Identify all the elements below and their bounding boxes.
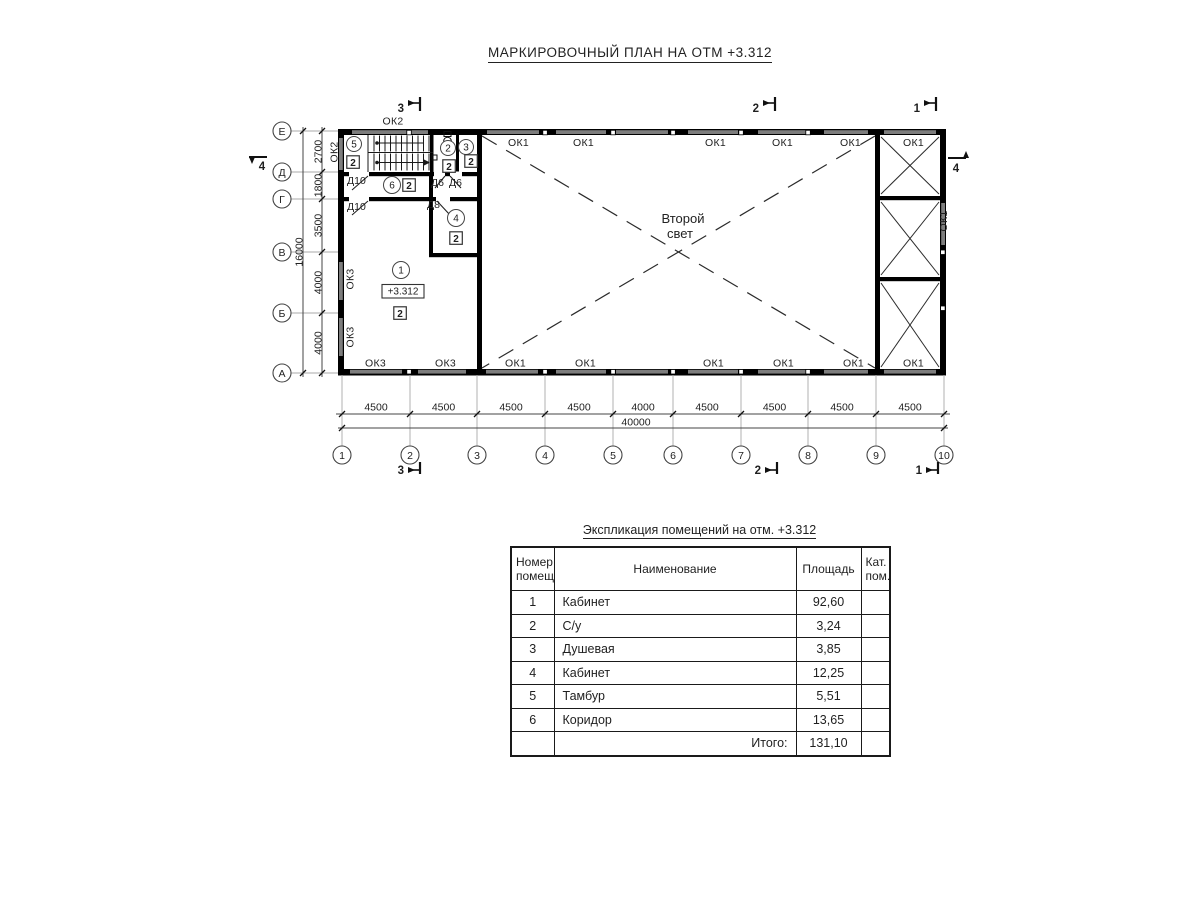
- total-area: 131,10: [796, 732, 861, 756]
- window-label-ok1: ОК1: [573, 137, 594, 149]
- axis-letter: Д: [278, 167, 285, 179]
- window-label-ok1: ОК1: [508, 137, 529, 149]
- room-number: 4: [453, 214, 459, 225]
- window-label-ok1: ОК1: [772, 137, 793, 149]
- section-mark-4-right: 4: [948, 151, 969, 175]
- axis-letter: Б: [279, 308, 286, 320]
- axis-number: 5: [610, 450, 616, 462]
- cell-name: Душевая: [554, 638, 796, 662]
- section-mark-1-top: 1: [914, 97, 936, 115]
- section-mark-3-top: 3: [398, 97, 420, 115]
- second-light-cross: [482, 136, 875, 368]
- window-label-ok2: ОК2: [382, 116, 403, 128]
- section-mark-1-bottom: 1: [916, 462, 938, 477]
- elevation-value: +3.312: [388, 287, 419, 298]
- cell-room-number: 4: [511, 661, 554, 685]
- dim-label: 4500: [695, 402, 719, 414]
- table-row: 2 С/у 3,24: [511, 614, 890, 638]
- wall-pier-squares: [407, 130, 945, 374]
- axis-letter: В: [278, 247, 285, 259]
- dim-total-label: 40000: [621, 417, 650, 429]
- axis-number: 1: [339, 450, 345, 462]
- stairs: [368, 135, 433, 172]
- cell-area: 12,25: [796, 661, 861, 685]
- dim-label: 4500: [830, 402, 854, 414]
- section-mark-2-bottom: 2: [755, 462, 777, 477]
- header-name: Наименование: [554, 547, 796, 591]
- cell-area: 5,51: [796, 685, 861, 709]
- cell-category: [861, 685, 890, 709]
- window-labels: ОК2 ОК1 ОК1 ОК1 ОК1 ОК1 ОК1 ОК3 ОК3 ОК1 …: [329, 116, 951, 370]
- cell-name: Кабинет: [554, 591, 796, 615]
- door-label-d6: Д6: [449, 177, 462, 189]
- explication-title-text: Экспликация помещений на отм. +3.312: [583, 523, 817, 539]
- section-mark-2-top: 2: [753, 97, 775, 115]
- cell-category: [861, 708, 890, 732]
- window-label-ok3: ОК3: [345, 268, 357, 289]
- section-mark-4-left: 4: [249, 157, 267, 173]
- table-row: 4 Кабинет 12,25: [511, 661, 890, 685]
- category-mark: 2: [468, 157, 474, 168]
- cell-name: Коридор: [554, 708, 796, 732]
- axis-number: 4: [542, 450, 548, 462]
- table-header-row: Номер помещ. Наименование Площадь Кат. п…: [511, 547, 890, 591]
- floor-plan: 4500 4500 4500 4500 4000 4500 4500 4500 …: [240, 85, 980, 495]
- door-label-d8: Д8: [427, 199, 440, 211]
- room-number: 6: [389, 181, 395, 192]
- room-number: 2: [445, 144, 451, 155]
- cell-area: 3,85: [796, 638, 861, 662]
- explication: Экспликация помещений на отм. +3.312 Ном…: [510, 521, 889, 757]
- section-number: 4: [259, 161, 266, 173]
- wall-axis3: [477, 135, 482, 369]
- window-label-ok1: ОК1: [705, 137, 726, 149]
- table-row: 3 Душевая 3,85: [511, 638, 890, 662]
- wall-rightsection-div1: [876, 196, 940, 200]
- table-row: 6 Коридор 13,65: [511, 708, 890, 732]
- window-label-ok1: ОК1: [903, 358, 924, 370]
- window-label-ok1: ОК1: [773, 358, 794, 370]
- cell-name: Кабинет: [554, 661, 796, 685]
- window-label-ok1: ОК1: [575, 358, 596, 370]
- header-category: Кат. пом.: [861, 547, 890, 591]
- drawing-sheet: МАРКИРОВОЧНЫЙ ПЛАН НА ОТМ +3.312: [0, 0, 1200, 900]
- axis-letter: А: [278, 368, 285, 380]
- wall-room4-bottom: [429, 253, 477, 257]
- cell-category: [861, 638, 890, 662]
- window-label-ok1: ОК1: [903, 137, 924, 149]
- axis-number: 8: [805, 450, 811, 462]
- axis-letter: Г: [279, 194, 285, 206]
- section-marks: 3 2 1 3 2: [249, 97, 969, 477]
- door-label-d10: Д10: [347, 201, 366, 213]
- section-number: 1: [914, 103, 921, 115]
- section-number: 1: [916, 465, 923, 477]
- dim-total-label: 16000: [294, 237, 306, 266]
- dim-label: 4500: [567, 402, 591, 414]
- table-total-row: Итого: 131,10: [511, 732, 890, 756]
- wall-axis9: [875, 135, 880, 369]
- cell-room-number: 3: [511, 638, 554, 662]
- cell-category: [861, 661, 890, 685]
- header-area: Площадь: [796, 547, 861, 591]
- dim-label: 4000: [313, 331, 325, 355]
- dim-label: 4500: [432, 402, 456, 414]
- cell-area: 13,65: [796, 708, 861, 732]
- dim-label: 4000: [631, 402, 655, 414]
- cell-room-number: 1: [511, 591, 554, 615]
- dim-label: 3500: [313, 214, 325, 238]
- right-section-crosses: [881, 137, 939, 367]
- dim-label: 1800: [313, 174, 325, 198]
- dim-label: 4500: [898, 402, 922, 414]
- window-label-ok3: ОК3: [345, 326, 357, 347]
- header-room-number: Номер помещ.: [511, 547, 554, 591]
- section-number: 3: [398, 103, 404, 115]
- wall-room23-divider: [456, 135, 459, 176]
- second-light-label: Второй свет: [662, 211, 705, 241]
- dim-label: 4500: [364, 402, 388, 414]
- door-label-d10: Д10: [347, 175, 366, 187]
- category-mark: 2: [397, 309, 403, 320]
- window-label-ok1: ОК1: [703, 358, 724, 370]
- room-number: 3: [463, 143, 469, 154]
- axis-number: 2: [407, 450, 413, 462]
- explication-table: Номер помещ. Наименование Площадь Кат. п…: [510, 546, 891, 757]
- wall-rightsection-div2: [876, 277, 940, 281]
- dim-label: 2700: [313, 140, 325, 164]
- drawing-title: МАРКИРОВОЧНЫЙ ПЛАН НА ОТМ +3.312: [430, 44, 830, 63]
- category-mark: 2: [446, 162, 452, 173]
- second-light-line1: Второй: [662, 211, 705, 226]
- category-mark: 2: [350, 158, 356, 169]
- cell-area: 92,60: [796, 591, 861, 615]
- window-label-ok3: ОК3: [365, 358, 386, 370]
- axis-numbers-bottom: 1 2 3 4 5 6 7 8 9 10: [339, 450, 950, 462]
- cell-room-number: 5: [511, 685, 554, 709]
- window-label-ok2: ОК2: [329, 141, 341, 162]
- room-number: 1: [398, 266, 404, 277]
- cell-room-number: 2: [511, 614, 554, 638]
- explication-title: Экспликация помещений на отм. +3.312: [510, 521, 889, 539]
- cell-empty: [511, 732, 554, 756]
- cell-category: [861, 591, 890, 615]
- axis-number: 6: [670, 450, 676, 462]
- window-label-ok1: ОК1: [843, 358, 864, 370]
- window-label-ok1: ОК1: [938, 210, 950, 231]
- category-mark: 2: [453, 234, 459, 245]
- section-number: 2: [753, 103, 759, 115]
- table-row: 1 Кабинет 92,60: [511, 591, 890, 615]
- cell-name: Тамбур: [554, 685, 796, 709]
- category-mark: 2: [406, 181, 412, 192]
- axis-bubbles-bottom: [333, 446, 953, 464]
- total-label: Итого:: [554, 732, 796, 756]
- cell-category: [861, 732, 890, 756]
- axis-number: 9: [873, 450, 879, 462]
- door-label-d6: Д6: [431, 177, 444, 189]
- stair-path-marks: [375, 141, 430, 165]
- drawing-title-text: МАРКИРОВОЧНЫЙ ПЛАН НА ОТМ +3.312: [488, 45, 772, 63]
- cell-area: 3,24: [796, 614, 861, 638]
- axis-letter: Е: [278, 126, 285, 138]
- section-number: 3: [398, 465, 404, 477]
- dim-label: 4500: [763, 402, 787, 414]
- axis-number: 10: [938, 450, 950, 462]
- cell-name: С/у: [554, 614, 796, 638]
- window-label-ok1: ОК1: [505, 358, 526, 370]
- second-light-line2: свет: [667, 226, 693, 241]
- dimension-labels-bottom: 4500 4500 4500 4500 4000 4500 4500 4500 …: [364, 402, 922, 429]
- axis-number: 7: [738, 450, 744, 462]
- window-label-ok1: ОК1: [840, 137, 861, 149]
- cell-category: [861, 614, 890, 638]
- room-number: 5: [351, 140, 357, 151]
- dim-label: 4500: [499, 402, 523, 414]
- axis-number: 3: [474, 450, 480, 462]
- cell-room-number: 6: [511, 708, 554, 732]
- dim-label: 4000: [313, 271, 325, 295]
- section-number: 2: [755, 465, 761, 477]
- section-number: 4: [953, 163, 960, 175]
- table-row: 5 Тамбур 5,51: [511, 685, 890, 709]
- window-label-ok3: ОК3: [435, 358, 456, 370]
